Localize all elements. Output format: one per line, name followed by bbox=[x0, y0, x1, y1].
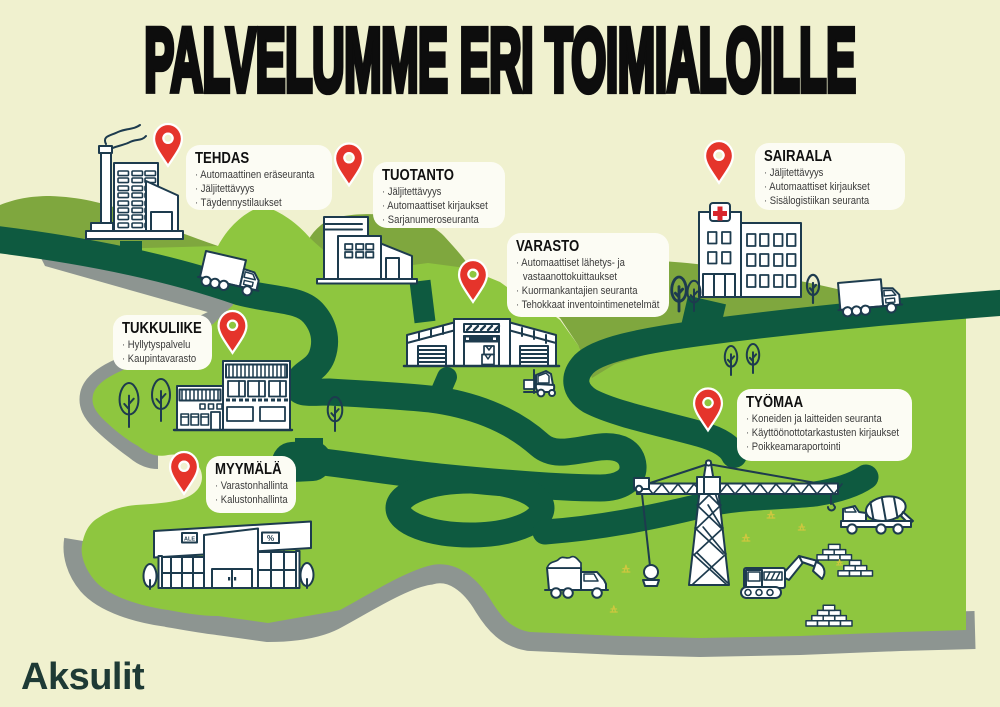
svg-text:PALVELUMME ERI TOIMIALOILLE: PALVELUMME ERI TOIMIALOILLE bbox=[144, 11, 855, 111]
svg-text:ALE: ALE bbox=[184, 537, 195, 543]
svg-text:%: % bbox=[267, 534, 274, 543]
